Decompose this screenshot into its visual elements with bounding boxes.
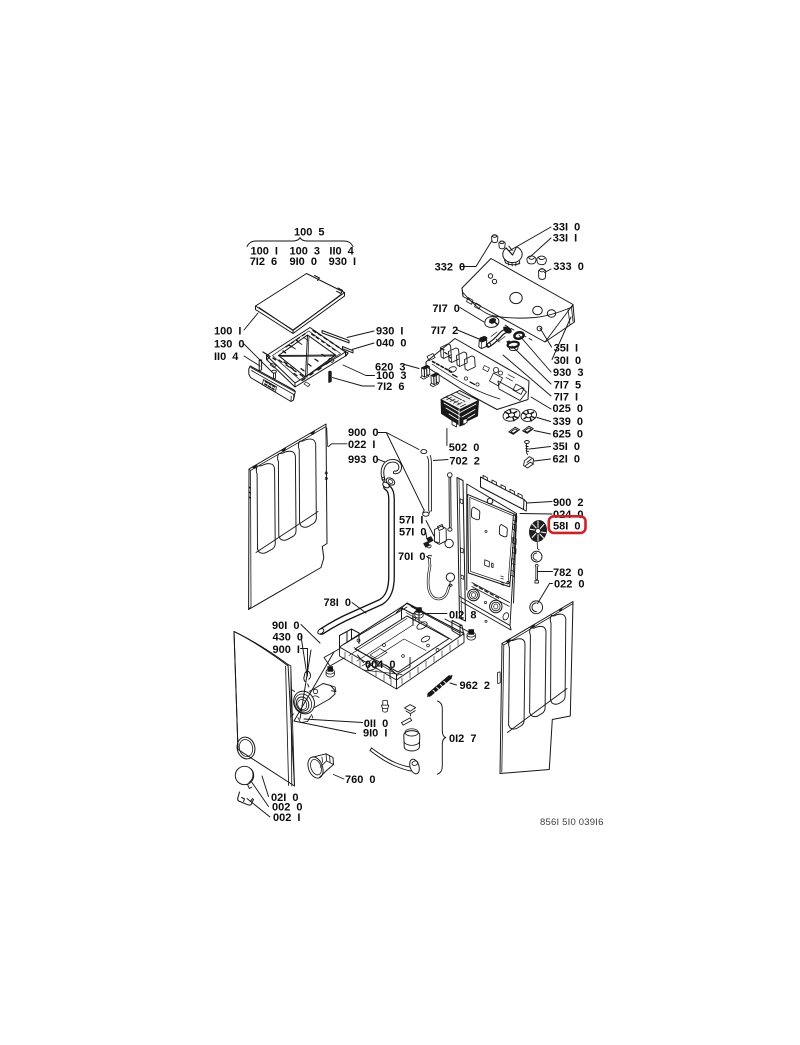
svg-text:782 0: 782 0 (553, 567, 584, 579)
svg-text:0I2 7: 0I2 7 (449, 733, 476, 745)
svg-text:900 0: 900 0 (348, 427, 379, 439)
svg-text:004 0: 004 0 (365, 659, 396, 671)
svg-text:100 I: 100 I (214, 326, 241, 338)
svg-text:930 I: 930 I (376, 326, 403, 338)
svg-text:900 2: 900 2 (553, 497, 584, 509)
svg-text:022 I: 022 I (348, 439, 375, 451)
svg-text:0I2 8: 0I2 8 (449, 610, 476, 622)
svg-text:II0 4: II0 4 (214, 351, 239, 363)
svg-text:332 0: 332 0 (435, 262, 466, 274)
svg-text:58I 0: 58I 0 (553, 521, 580, 533)
svg-text:900 I: 900 I (273, 644, 300, 656)
svg-text:333 0: 333 0 (553, 261, 584, 273)
svg-text:35I I: 35I I (554, 343, 578, 355)
svg-text:62I 0: 62I 0 (553, 454, 580, 466)
svg-text:57I I: 57I I (399, 515, 423, 527)
svg-text:040 0: 040 0 (376, 338, 407, 350)
svg-text:130 0: 130 0 (214, 339, 245, 351)
svg-text:930 3: 930 3 (553, 367, 584, 379)
svg-text:930 I: 930 I (329, 256, 356, 268)
svg-text:760 0: 760 0 (345, 774, 376, 786)
svg-text:9I0 I: 9I0 I (363, 728, 387, 740)
svg-text:70I 0: 70I 0 (398, 551, 425, 563)
svg-text:7I7 I: 7I7 I (554, 392, 578, 404)
svg-text:430 0: 430 0 (273, 632, 304, 644)
svg-text:993 0: 993 0 (348, 454, 379, 466)
svg-text:002 I: 002 I (273, 812, 300, 824)
svg-text:35I 0: 35I 0 (553, 441, 580, 453)
svg-text:702 2: 702 2 (449, 456, 480, 468)
svg-text:7I7 5: 7I7 5 (554, 380, 581, 392)
svg-text:57I 0: 57I 0 (399, 527, 426, 539)
svg-text:625 0: 625 0 (553, 429, 584, 441)
svg-text:7I7 0: 7I7 0 (432, 303, 459, 315)
svg-text:025 0: 025 0 (553, 403, 584, 415)
svg-text:7I2 6: 7I2 6 (250, 256, 277, 268)
svg-text:78I 0: 78I 0 (324, 597, 351, 609)
svg-text:856I 5I0 039I6: 856I 5I0 039I6 (540, 817, 604, 828)
svg-text:9I0 0: 9I0 0 (290, 256, 317, 268)
svg-text:33I I: 33I I (553, 233, 577, 245)
svg-text:100 5: 100 5 (294, 227, 325, 239)
svg-text:7I2 6: 7I2 6 (377, 381, 404, 393)
svg-text:022 0: 022 0 (554, 579, 585, 591)
svg-text:502 0: 502 0 (449, 442, 480, 454)
svg-text:7I7 2: 7I7 2 (431, 325, 458, 337)
svg-text:339 0: 339 0 (553, 416, 584, 428)
svg-text:90I 0: 90I 0 (272, 620, 299, 632)
svg-text:962 2: 962 2 (460, 680, 491, 692)
svg-text:30I 0: 30I 0 (554, 355, 581, 367)
